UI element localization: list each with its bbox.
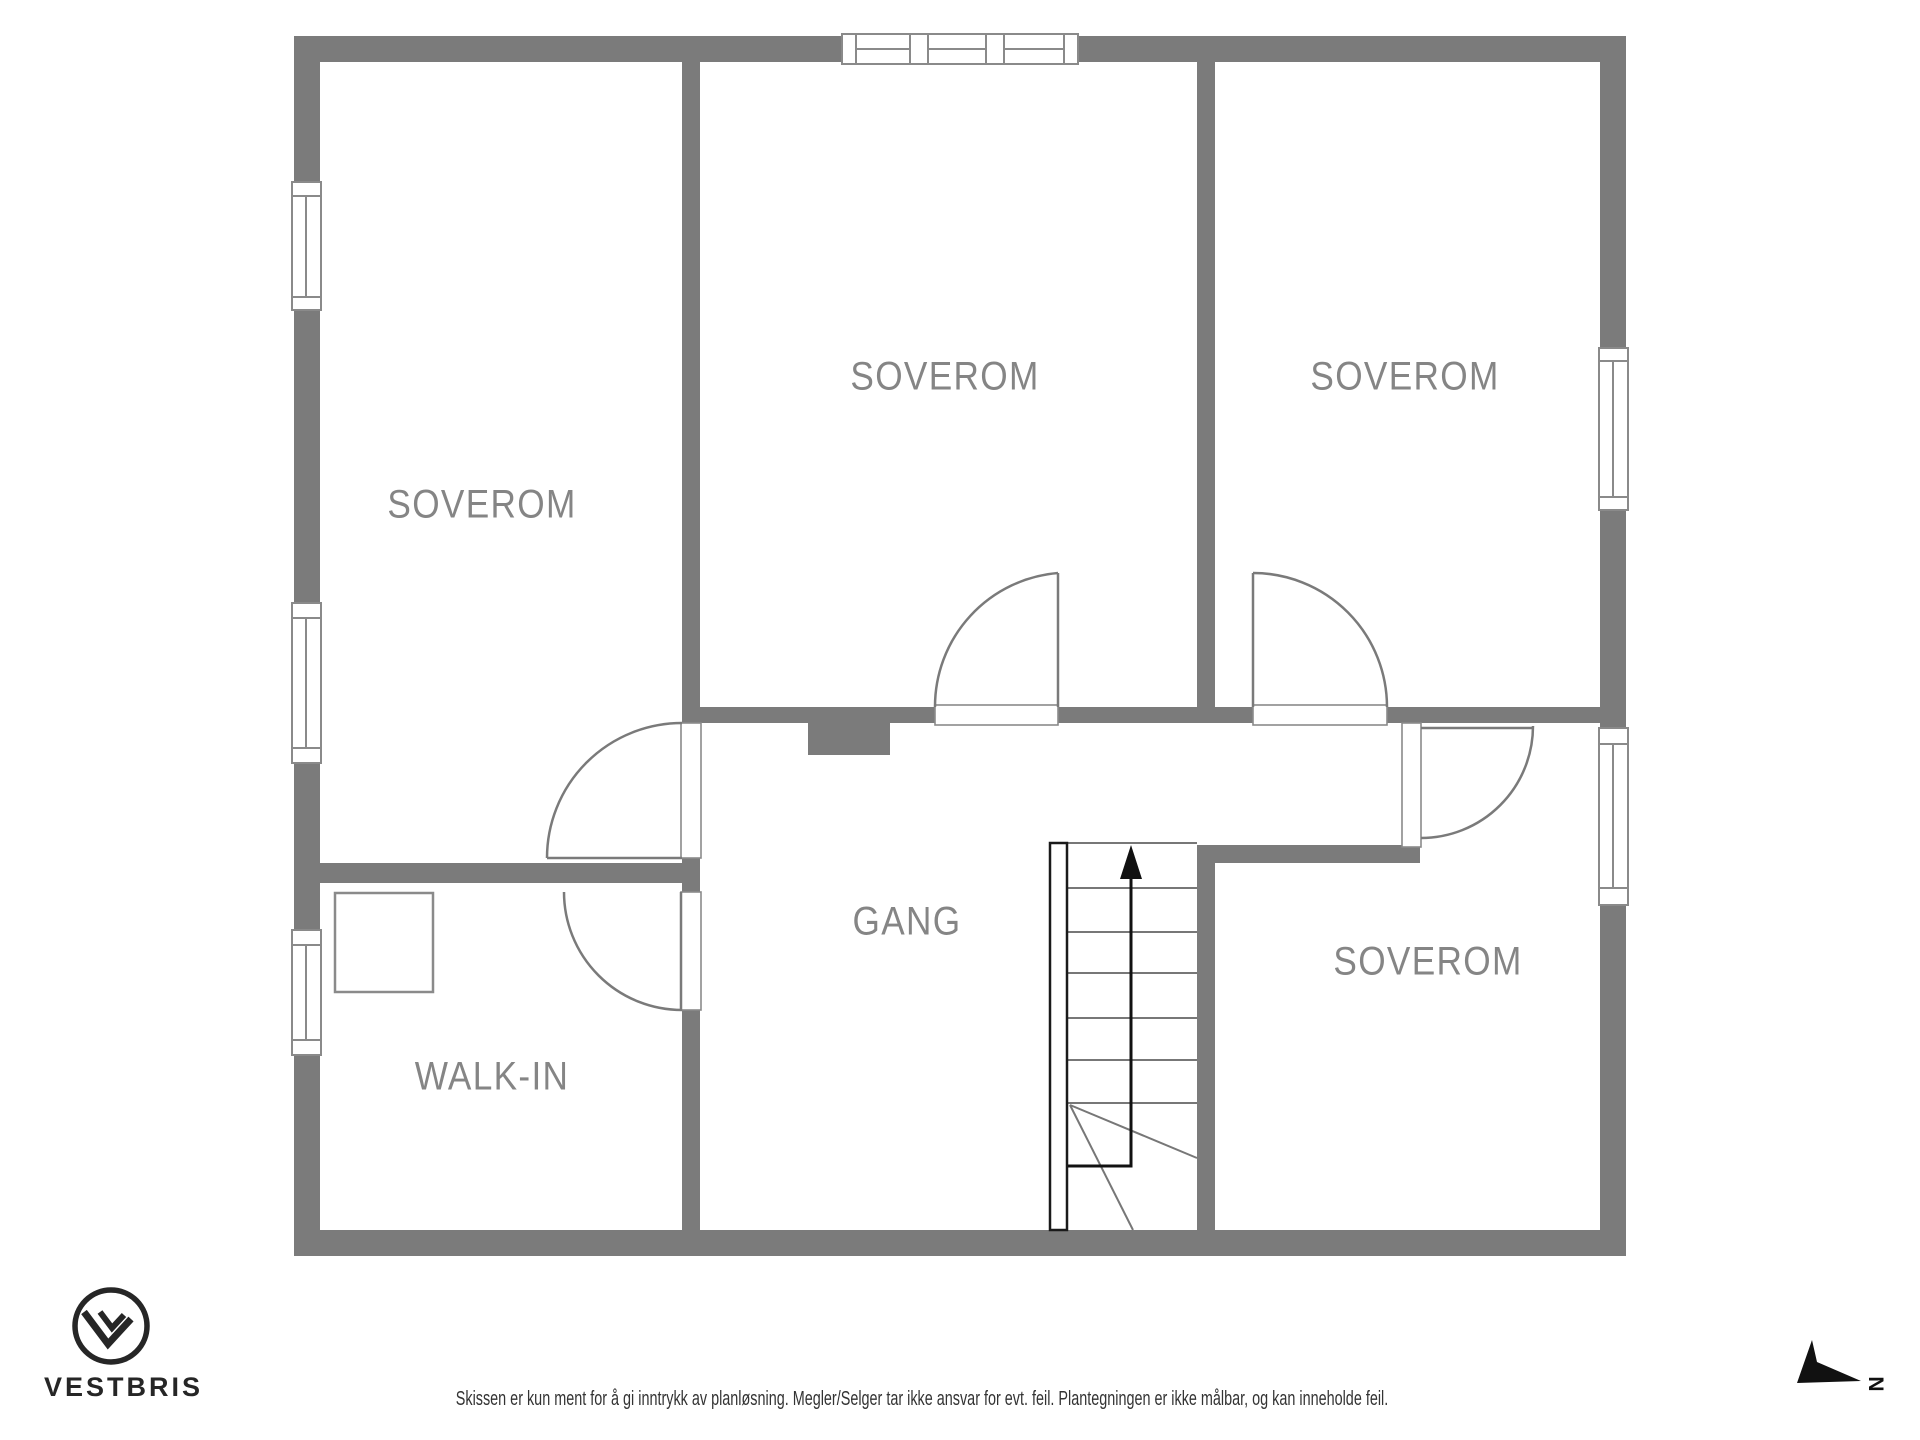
- vestbris-logo-icon: [75, 1290, 147, 1362]
- stair-direction-arrow: [1068, 845, 1142, 1166]
- wall-gang-north-3: [1387, 707, 1601, 723]
- threshold-soverom-top-middle: [935, 705, 1058, 725]
- wall-vertical-b-top: [1197, 62, 1215, 707]
- staircase: [1050, 843, 1197, 1230]
- room-label-soverom-top-left: SOVEROM: [387, 483, 576, 528]
- threshold-soverom-top-left: [681, 723, 701, 858]
- wall-vertical-a-low: [682, 1010, 700, 1231]
- room-label-soverom-top-right: SOVEROM: [1310, 355, 1499, 400]
- door-soverom-top-right: [1253, 573, 1387, 707]
- brand-name: VESTBRIS: [44, 1372, 203, 1403]
- room-label-soverom-bottom-right: SOVEROM: [1333, 940, 1522, 985]
- wall-corridor-south: [1215, 845, 1420, 863]
- wall-right: [1600, 36, 1626, 1256]
- floor-plan-drawing: N: [0, 0, 1920, 1440]
- wall-bottom: [294, 1230, 1626, 1256]
- chimney-block: [808, 723, 890, 755]
- door-soverom-top-left: [547, 723, 682, 858]
- room-label-soverom-top-middle: SOVEROM: [850, 355, 1039, 400]
- window-right-2: [1599, 728, 1628, 905]
- disclaimer-text: Skissen er kun ment for å gi inntrykk av…: [456, 1388, 1388, 1411]
- stair-rail: [1050, 843, 1067, 1230]
- window-left-2: [292, 603, 321, 763]
- north-letter: N: [1864, 1376, 1887, 1391]
- floor-plan-page: N SOVEROM SOVEROM SOVEROM GANG WALK-IN S…: [0, 0, 1920, 1440]
- room-label-walk-in: WALK-IN: [415, 1055, 570, 1100]
- threshold-soverom-bottom-right: [1402, 723, 1421, 847]
- north-marker: N: [1797, 1340, 1887, 1392]
- stair-arrowhead: [1120, 845, 1142, 879]
- north-arrow-icon: [1797, 1340, 1861, 1383]
- door-soverom-top-middle: [935, 573, 1058, 707]
- room-label-gang: GANG: [853, 900, 962, 945]
- door-walk-in: [564, 892, 682, 1010]
- wall-vertical-b-low: [1197, 845, 1215, 1231]
- wall-gang-north-2: [1058, 707, 1253, 723]
- window-top: [842, 34, 1078, 64]
- window-left-1: [292, 182, 321, 310]
- wall-gang-north-1: [700, 707, 935, 723]
- closet-box: [335, 893, 433, 992]
- threshold-walk-in: [681, 892, 701, 1010]
- door-soverom-bottom-right: [1421, 726, 1533, 838]
- window-right-1: [1599, 348, 1628, 510]
- window-left-3: [292, 930, 321, 1055]
- wall-vertical-a-top: [682, 62, 700, 723]
- wall-walkin-north: [320, 863, 700, 883]
- threshold-soverom-top-right: [1253, 705, 1387, 725]
